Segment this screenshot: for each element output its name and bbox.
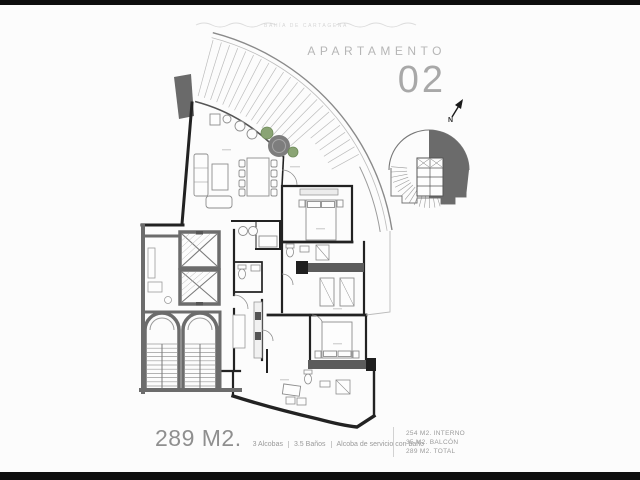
stairs-icon: [145, 313, 217, 392]
laundry-icons: [239, 227, 278, 248]
kitchen-counter: [233, 302, 262, 358]
feature-bedrooms: 3 Alcobas: [248, 441, 288, 448]
core-walls: [141, 226, 240, 392]
slide: BAHÍA DE CARTAGENA: [0, 0, 640, 480]
area-summary: 289 M2. 3 Alcobas3.5 BañosAlcoba de serv…: [155, 425, 429, 452]
title-block: APARTAMENTO 02: [307, 44, 446, 99]
key-plan: [389, 130, 469, 208]
bedroom1-bed: [299, 189, 343, 240]
feature-bathrooms: 3.5 Baños: [288, 441, 331, 448]
tree-icon: [261, 127, 298, 157]
dining-table: [239, 158, 277, 196]
core-lobby-fixtures: [148, 248, 172, 304]
north-label: N: [448, 117, 453, 124]
sea-label: BAHÍA DE CARTAGENA: [264, 22, 348, 29]
stat-total: 289 M2. TOTAL: [406, 447, 465, 456]
area-total: 289 M2.: [155, 425, 242, 452]
apartment-number: 02: [307, 61, 446, 99]
area-breakdown: 254 M2. INTERNO 35 M2. BALCÓN 289 M2. TO…: [406, 429, 465, 456]
service-bed: [282, 384, 300, 396]
wardrobes: [320, 278, 354, 306]
bedroom3-bed: [315, 322, 359, 358]
footer-divider: [393, 427, 394, 457]
east-edge: [366, 231, 390, 315]
page-title: APARTAMENTO: [307, 44, 446, 58]
feature-list: 3 Alcobas3.5 BañosAlcoba de servicio con…: [248, 441, 429, 448]
stat-balcon: 35 M2. BALCÓN: [406, 438, 465, 447]
bottom-letterbox: [0, 472, 640, 480]
north-arrow-icon: N: [448, 99, 463, 124]
stat-interno: 254 M2. INTERNO: [406, 429, 465, 438]
